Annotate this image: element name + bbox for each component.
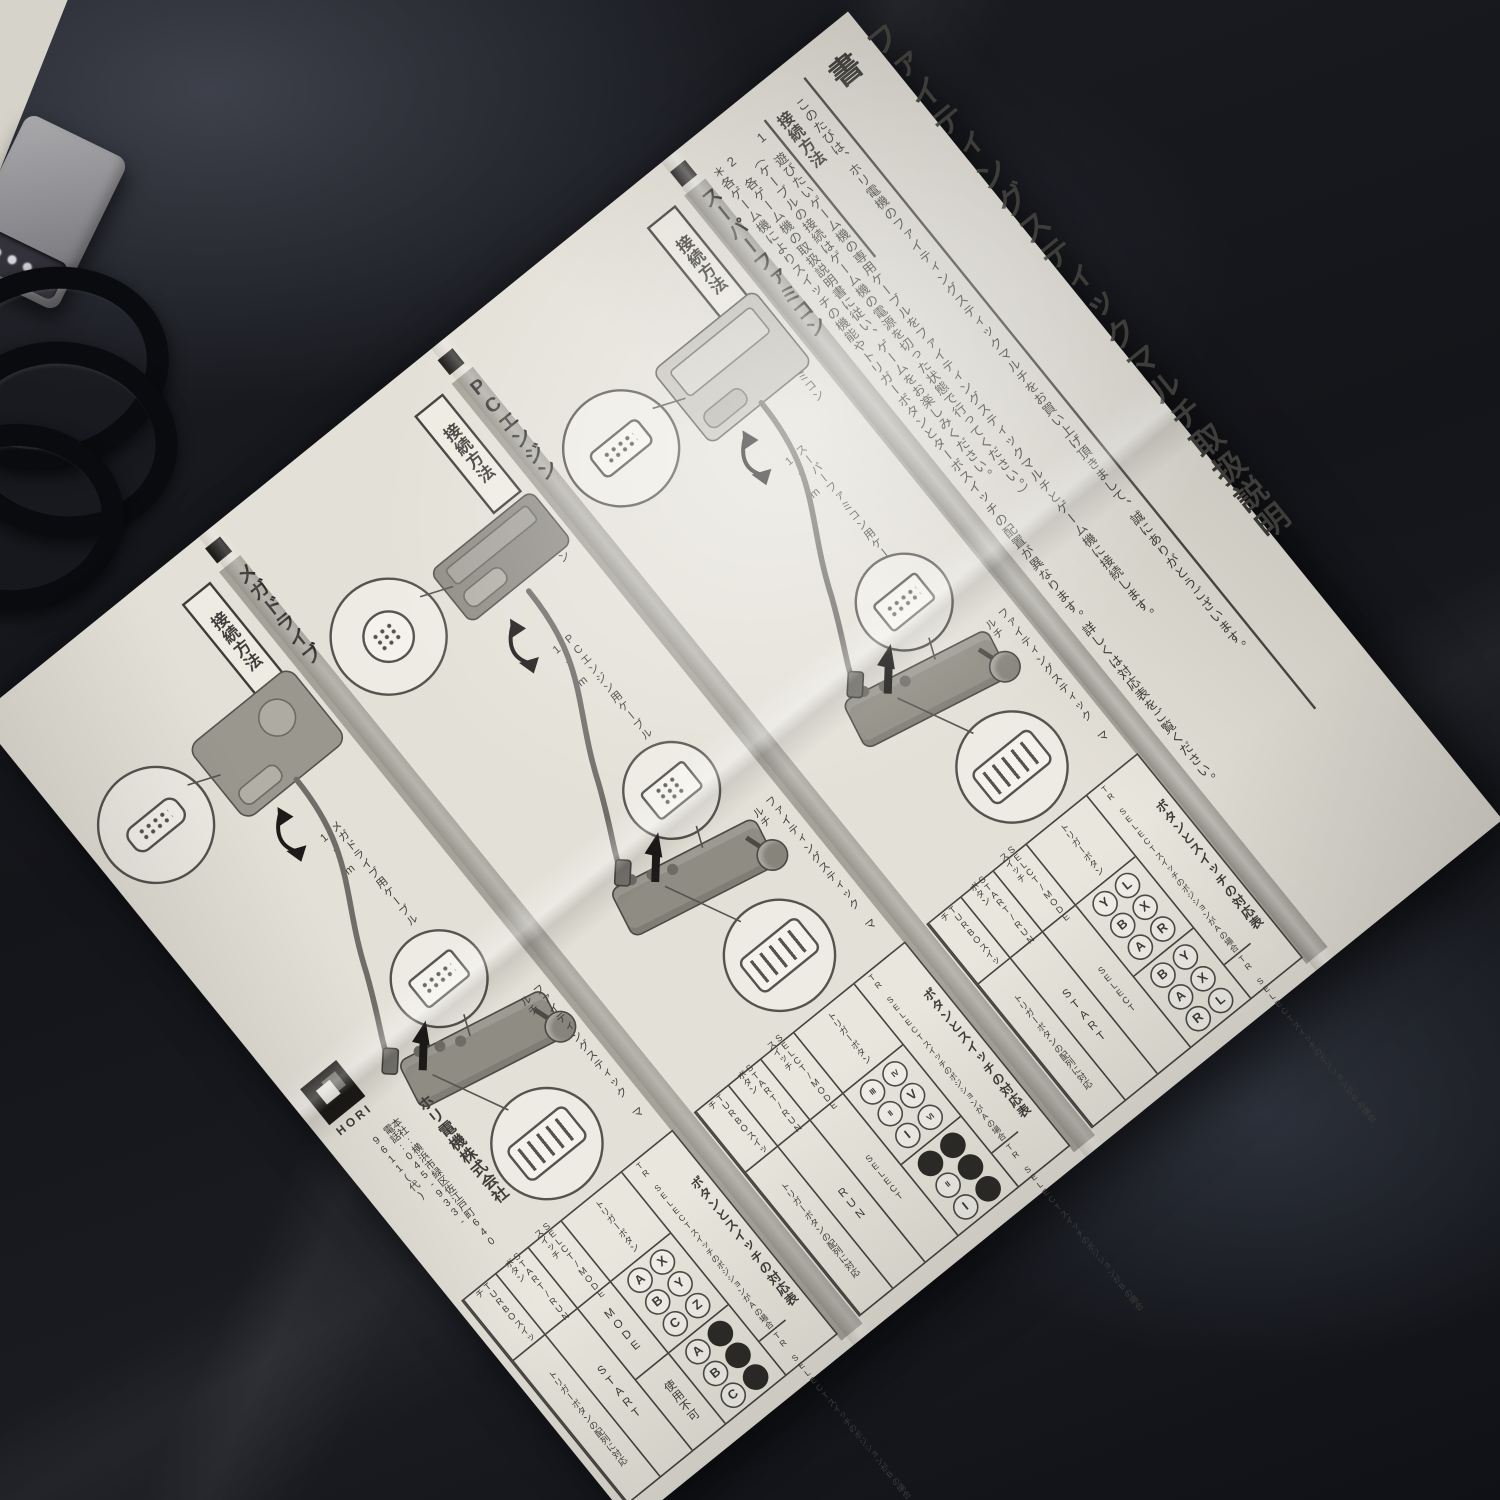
hori-logo-mark [316, 1080, 341, 1105]
photo-scene: ファイティングスティックマルチ取扱説明書 このたびは、ホリ電機のファイティングス… [0, 0, 1500, 1500]
